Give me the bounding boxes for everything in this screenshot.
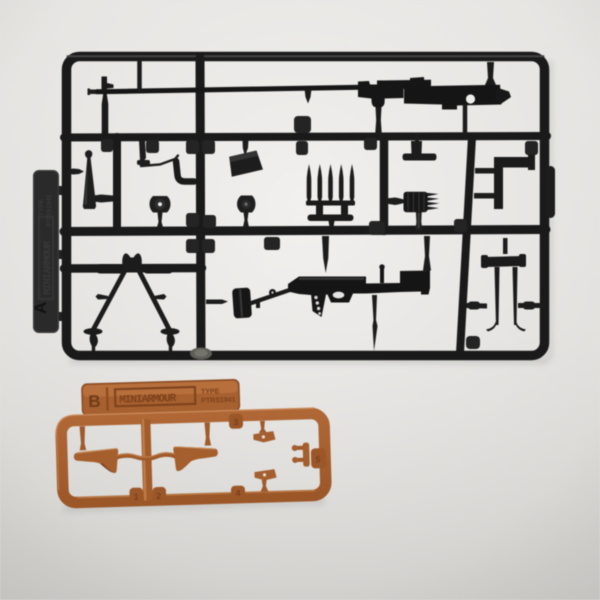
svg-text:MINIARMOUR: MINIARMOUR <box>42 240 54 295</box>
svg-text:2: 2 <box>156 491 161 501</box>
svg-text:MINIARMOUR: MINIARMOUR <box>119 393 177 407</box>
svg-text:PTRS1941: PTRS1941 <box>46 194 53 226</box>
svg-text:1: 1 <box>133 492 138 502</box>
svg-text:PTRS1941: PTRS1941 <box>201 397 236 405</box>
svg-text:5: 5 <box>315 454 320 464</box>
svg-text:A: A <box>31 302 50 314</box>
svg-text:TYPE: TYPE <box>201 388 220 396</box>
svg-text:3: 3 <box>233 417 238 427</box>
svg-text:TYPE: TYPE <box>38 198 45 216</box>
svg-text:B: B <box>88 392 101 411</box>
svg-text:4: 4 <box>235 488 240 498</box>
